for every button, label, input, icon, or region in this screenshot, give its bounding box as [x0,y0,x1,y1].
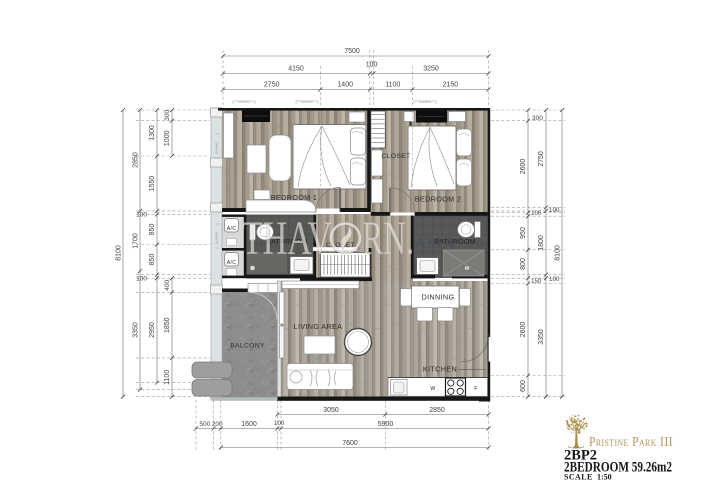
svg-text:7500: 7500 [344,48,360,55]
svg-text:F: F [474,386,477,392]
svg-text:7600: 7600 [342,440,358,447]
svg-text:3050: 3050 [323,407,339,414]
svg-text:1600: 1600 [241,421,257,428]
svg-text:1000: 1000 [164,130,171,146]
svg-text:LIVING AREA: LIVING AREA [294,322,343,331]
svg-text:RN.: RN. [362,212,414,265]
svg-text:1100: 1100 [385,82,400,89]
svg-text:SLIDING: SLIDING [215,141,219,154]
svg-text:300: 300 [532,115,543,122]
svg-text:2850: 2850 [429,407,445,414]
svg-text:100: 100 [136,276,147,283]
svg-text:3250: 3250 [423,66,439,73]
svg-text:1700: 1700 [133,233,140,249]
svg-text:2950: 2950 [149,322,156,338]
svg-text:100: 100 [136,212,147,219]
svg-text:100: 100 [274,420,285,427]
svg-text:A/C: A/C [227,260,237,266]
svg-text:A/C: A/C [227,226,237,232]
svg-text:SLIDING: SLIDING [419,100,432,104]
svg-text:1400: 1400 [337,82,353,89]
svg-text:8100: 8100 [555,245,562,261]
svg-text:150: 150 [531,278,542,285]
svg-text:1800: 1800 [538,235,545,251]
svg-text:SLIDING: SLIDING [215,231,219,244]
svg-text:W: W [430,386,435,392]
svg-text:600: 600 [520,380,527,392]
svg-text:SCALE: SCALE [564,472,593,481]
svg-text:800: 800 [520,258,527,270]
svg-text:BEDROOM 2: BEDROOM 2 [415,195,462,204]
svg-text:SLIDING: SLIDING [238,100,251,104]
svg-text:4150: 4150 [288,66,304,73]
svg-text:2850: 2850 [133,152,140,168]
svg-text:950: 950 [520,227,527,239]
svg-text:1100: 1100 [164,370,171,385]
svg-text:1850: 1850 [164,317,171,333]
svg-text:850: 850 [149,224,156,236]
svg-text:3350: 3350 [133,322,140,338]
svg-text:200: 200 [212,421,223,428]
svg-text:DINNING: DINNING [422,293,455,302]
svg-text:SLIDING: SLIDING [301,100,314,104]
svg-text:100: 100 [549,207,560,214]
svg-text:2600: 2600 [520,322,527,338]
svg-text:KITCHEN: KITCHEN [423,365,457,374]
svg-text:2750: 2750 [264,82,280,89]
svg-text:100: 100 [549,276,560,283]
svg-text:5900: 5900 [378,421,394,428]
svg-text:850: 850 [149,254,156,266]
svg-text:2600: 2600 [520,159,527,175]
svg-text:ASIA: ASIA [415,236,456,252]
svg-text:8100: 8100 [116,245,123,261]
svg-text:2750: 2750 [538,151,545,167]
svg-text:BALCONY: BALCONY [230,343,265,350]
svg-text:BEDROOM 1: BEDROOM 1 [271,193,318,202]
svg-text:CLOSET: CLOSET [382,153,411,160]
svg-text:100: 100 [366,62,378,69]
svg-text:3350: 3350 [538,329,545,345]
svg-text:1:50: 1:50 [597,472,612,481]
svg-text:1300: 1300 [149,125,156,141]
svg-text:500: 500 [199,421,210,428]
svg-text:100: 100 [531,210,542,217]
svg-text:1550: 1550 [149,176,156,192]
svg-text:Pristine Park III: Pristine Park III [589,434,673,449]
svg-text:2150: 2150 [443,82,459,89]
svg-text:400: 400 [164,279,171,290]
svg-text:THAV: THAV [242,212,332,265]
svg-text:300: 300 [164,109,171,120]
